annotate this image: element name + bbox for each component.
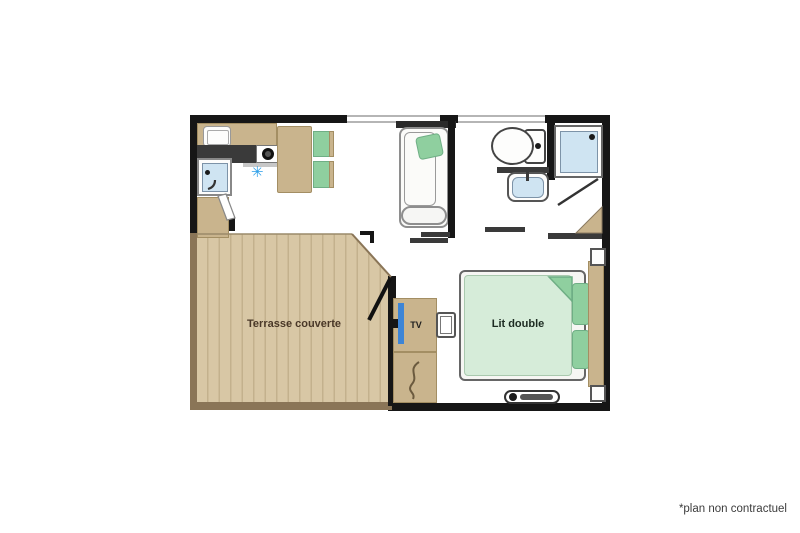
terrace-left-border [190, 233, 197, 410]
washbasin-tap [526, 172, 529, 181]
chair-1-back [329, 131, 334, 157]
toilet-icon [491, 127, 534, 165]
sliding-door-bar-a [421, 232, 450, 237]
plan-footnote: *plan non contractuel [679, 503, 787, 515]
plan-lines [0, 0, 800, 533]
brand-badge-mark [509, 393, 517, 401]
tv-wall-tick [392, 319, 398, 328]
terrace-bottom-border [190, 402, 392, 410]
entry-door-leaf [576, 207, 602, 233]
tv-lower-cabinet [393, 352, 437, 403]
bed-label: Lit double [468, 319, 568, 330]
nightstand-top [590, 248, 606, 266]
terrace-label: Terrasse couverte [228, 319, 360, 330]
tv-screen [398, 303, 404, 344]
terrace-corner-v [370, 231, 374, 243]
window-top-2 [458, 115, 545, 123]
chair-2-back [329, 161, 334, 188]
hob-burner [262, 148, 274, 160]
bathroom-door-leaf [558, 179, 598, 205]
top-wall-right [545, 115, 610, 123]
living-bath-wall [448, 115, 455, 238]
dining-table [277, 126, 312, 193]
hall-wall-seg [485, 227, 525, 232]
tv-label: TV [406, 321, 426, 330]
sliding-door-bar-b [410, 238, 448, 243]
washroom-drain [205, 170, 210, 175]
washroom-basin-icon [202, 163, 228, 192]
bedroom-wall-seg [548, 233, 602, 239]
nightstand-bottom [590, 385, 606, 402]
toilet-flush-button [535, 143, 541, 149]
left-wall [190, 115, 197, 235]
washroom-cabinet [197, 197, 229, 238]
bottom-wall [388, 403, 610, 411]
kitchen-sink-basin [207, 130, 229, 145]
brand-badge-text [520, 394, 553, 400]
tv-chair-seat [440, 316, 452, 334]
shower-head [589, 134, 595, 140]
sofa-armrest [401, 206, 447, 225]
fridge-snowflake-icon: ✳ [251, 165, 264, 180]
bed-headboard [588, 261, 604, 387]
top-wall-left [190, 115, 348, 123]
floor-plan: Terrasse couverte ✳ Lit double [0, 0, 800, 533]
